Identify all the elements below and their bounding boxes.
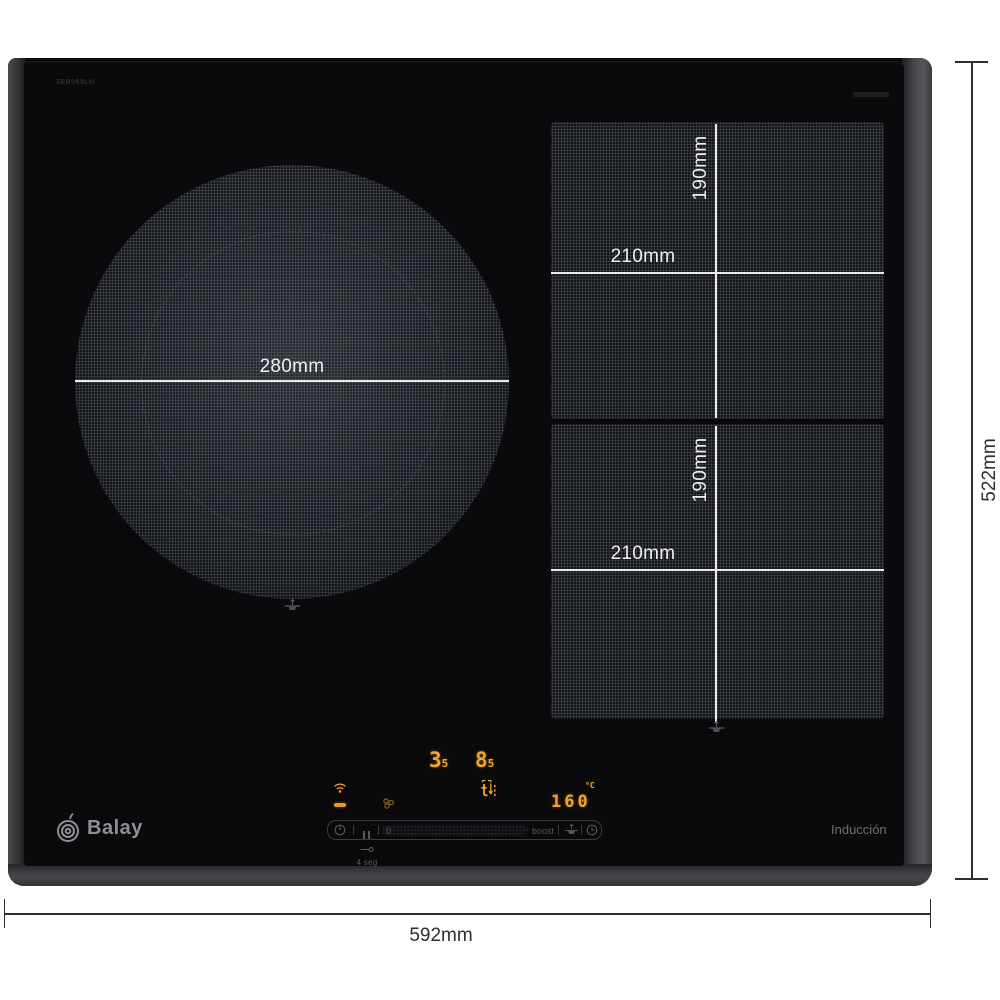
- flex-zone-bottom: [551, 424, 884, 719]
- bridge-zones-icon: [382, 797, 395, 809]
- strip-divider: [581, 825, 582, 835]
- temperature-display: 160 °C: [551, 792, 591, 812]
- left-zone-power-half: 5: [442, 757, 449, 770]
- wifi-icon: [333, 782, 347, 793]
- depth-dimension-cap-top: [955, 61, 988, 63]
- strip-divider: [378, 825, 379, 835]
- depth-dimension-label: 522mm: [980, 430, 1000, 510]
- round-zone-diameter-line: [75, 380, 509, 382]
- model-number: 3EB969LH: [56, 79, 95, 86]
- right-zone-power-display: 85: [475, 750, 494, 771]
- flex-bottom-width-line: [551, 569, 884, 571]
- strip-divider: [353, 825, 354, 835]
- flex-top-width-line: [551, 272, 884, 274]
- left-zone-power-display: 35: [429, 750, 448, 771]
- flex-zone-top: [551, 122, 884, 419]
- lock-hint-label: 4 seg: [349, 858, 385, 867]
- boost-label: boost: [530, 826, 556, 836]
- pan-position-marker-icon: [284, 599, 301, 612]
- flex-bottom-width-label: 210mm: [603, 543, 683, 565]
- flex-top-height-label: 190mm: [691, 128, 711, 208]
- round-zone-inner-ring: [141, 231, 445, 535]
- balay-emblem-icon: [55, 811, 81, 845]
- right-zone-power-half: 5: [488, 757, 495, 770]
- flex-bottom-height-line: [715, 426, 717, 722]
- flex-top-width-label: 210mm: [603, 246, 683, 268]
- frying-sensor-indicator-icon: [477, 777, 501, 801]
- depth-dimension-line: [971, 62, 973, 879]
- brand-name: Balay: [87, 817, 143, 840]
- power-icon: [334, 824, 346, 836]
- strip-divider: [558, 825, 559, 835]
- hob-right-edge: [902, 58, 932, 886]
- lock-hint: 4 seg: [349, 840, 385, 867]
- brand-logo: Balay: [55, 811, 143, 845]
- width-dimension-tick-right: [930, 899, 932, 928]
- hob-front-edge: [8, 864, 932, 886]
- pan-select-icon: [564, 824, 579, 836]
- width-dimension-tick-left: [4, 899, 6, 928]
- touch-control-strip: 0 boost: [327, 820, 602, 840]
- technology-label: Inducción: [831, 822, 887, 837]
- right-zone-power-main: 8: [475, 748, 488, 772]
- width-dimension-label: 592mm: [391, 925, 491, 947]
- flex-top-height-line: [715, 124, 717, 418]
- serial-marking: [853, 92, 889, 97]
- round-zone-diameter-label: 280mm: [252, 356, 332, 378]
- slider-min-label: 0: [386, 826, 391, 836]
- pairing-indicator: [334, 803, 346, 807]
- pan-position-marker-icon: [708, 721, 725, 734]
- power-slider: [382, 825, 528, 836]
- depth-dimension-cap-bottom: [955, 878, 988, 880]
- product-image: 3EB969LH 280mm 190mm 210mm 190mm 210mm 3…: [0, 0, 1000, 1000]
- left-zone-power-main: 3: [429, 748, 442, 772]
- width-dimension-line: [4, 913, 931, 915]
- temperature-value: 160: [551, 792, 591, 812]
- key-icon: [360, 846, 374, 853]
- temperature-unit: °C: [585, 781, 595, 790]
- timer-clock-icon: [586, 824, 598, 836]
- flex-bottom-height-label: 190mm: [691, 430, 711, 510]
